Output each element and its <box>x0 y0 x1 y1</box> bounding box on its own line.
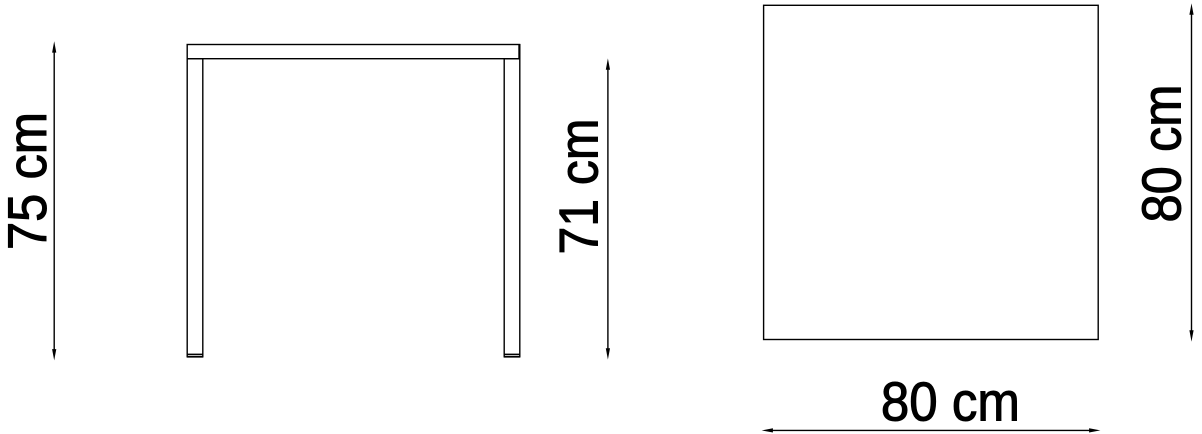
svg-text:75 cm: 75 cm <box>0 112 58 250</box>
svg-text:80 cm: 80 cm <box>1131 85 1193 223</box>
svg-text:80 cm: 80 cm <box>881 371 1020 433</box>
svg-text:71 cm: 71 cm <box>548 119 610 255</box>
